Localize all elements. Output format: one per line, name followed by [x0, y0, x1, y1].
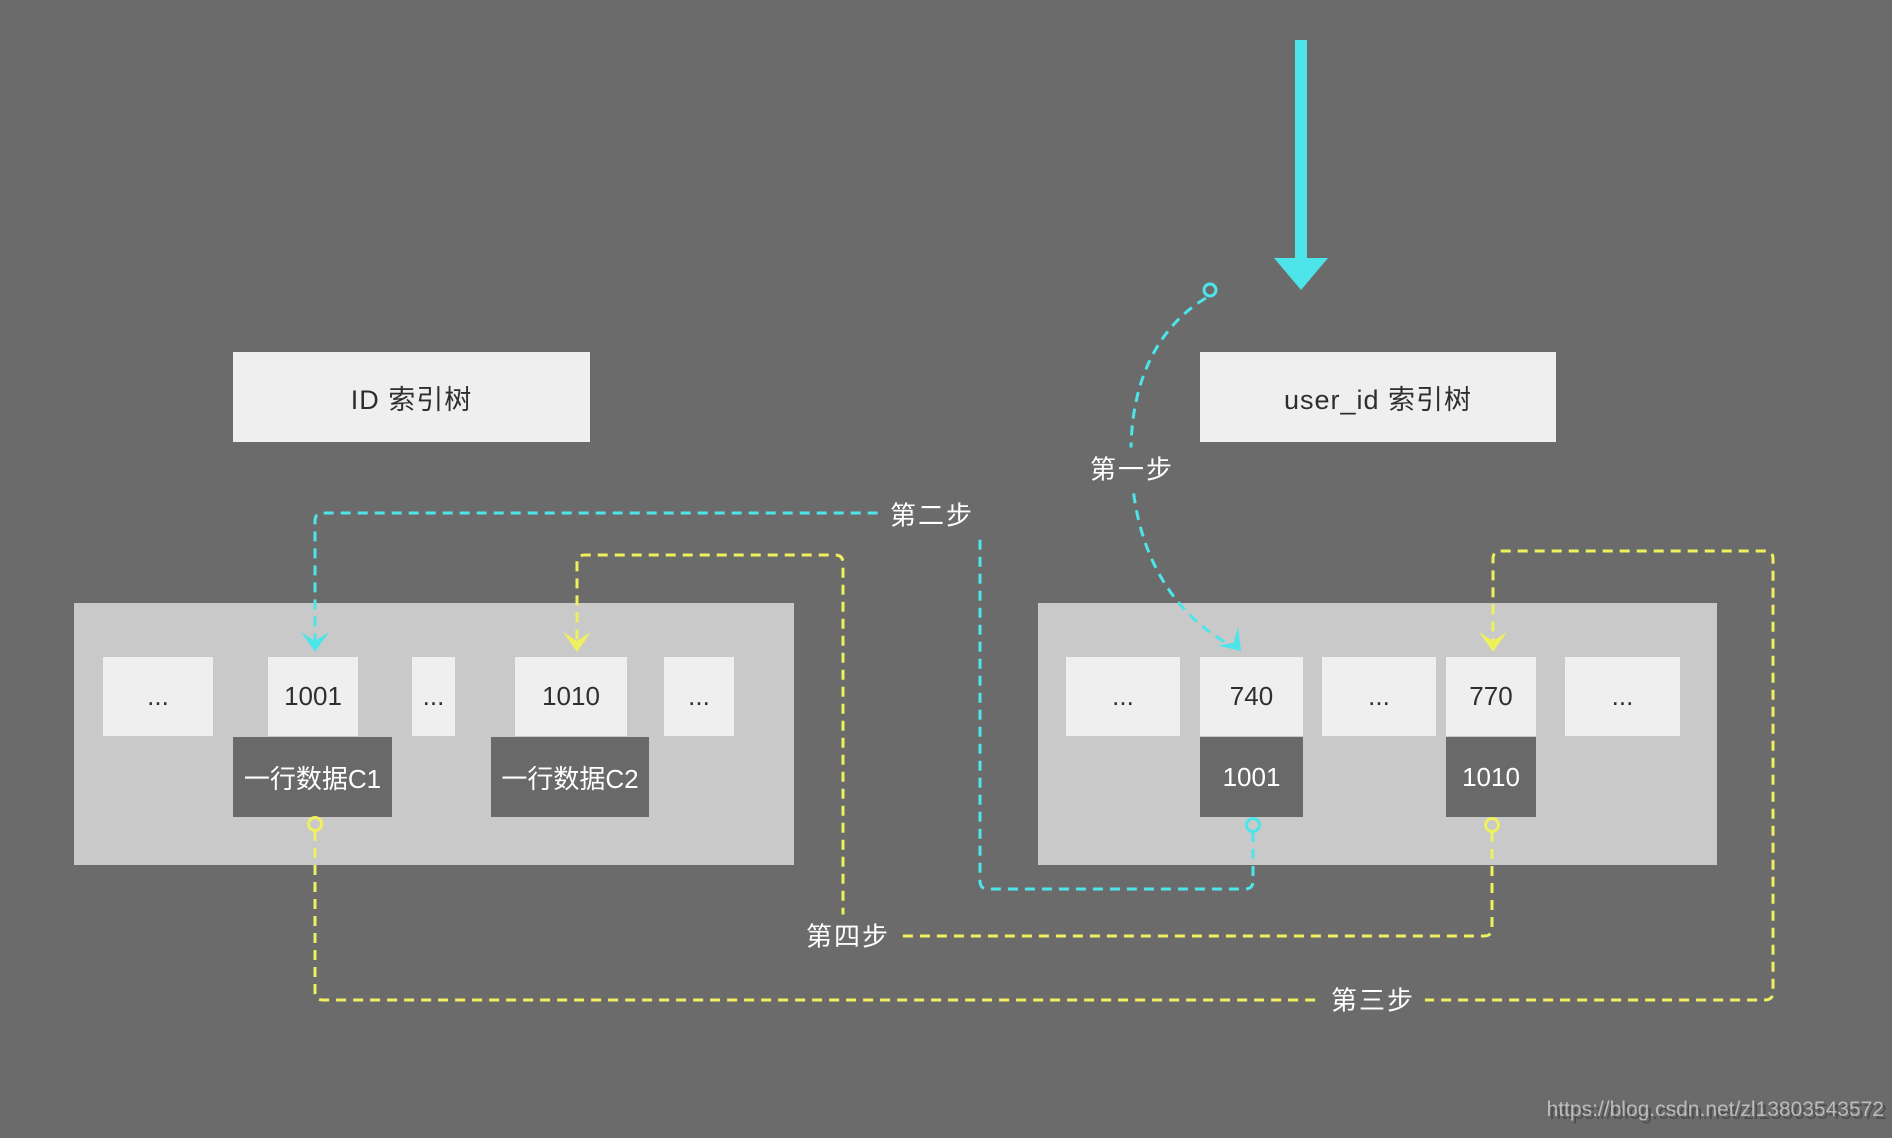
primary-key-1010-box: 1010 [1446, 737, 1536, 817]
cell-label: ... [688, 681, 710, 712]
id-index-tree-title: ID 索引树 [351, 378, 473, 417]
id-index-cell-ellipsis-2: ... [412, 657, 455, 736]
cell-label: ... [147, 681, 169, 712]
id-index-leaf-container: ... 1001 ... 1010 ... 一行数据C1 一行数据C2 [74, 603, 794, 865]
watermark: https://blog.csdn.net/zl13803543572 http… [1547, 1098, 1884, 1122]
id-index-cell-1001: 1001 [268, 657, 358, 736]
userid-index-tree-title: user_id 索引树 [1284, 378, 1472, 417]
watermark-url-text: https://blog.csdn.net/zl13803543572 [1547, 1098, 1884, 1121]
step3-label: 第三步 [1321, 979, 1425, 1020]
primary-key-label: 1001 [1223, 762, 1281, 793]
step4-label: 第四步 [796, 915, 900, 956]
step2-label: 第二步 [880, 494, 984, 535]
row-data-label: 一行数据C2 [501, 759, 638, 796]
row-data-c2-box: 一行数据C2 [491, 737, 649, 817]
step1-start-connector [1204, 284, 1216, 296]
userid-index-cell-ellipsis-1: ... [1066, 657, 1180, 736]
diagram-canvas: ID 索引树 user_id 索引树 ... 1001 ... 1010 ...… [0, 0, 1892, 1138]
id-index-cell-ellipsis-1: ... [103, 657, 213, 736]
id-index-cell-1010: 1010 [515, 657, 627, 736]
userid-index-cell-ellipsis-3: ... [1565, 657, 1680, 736]
userid-index-cell-770: 770 [1446, 657, 1536, 736]
primary-key-1001-box: 1001 [1200, 737, 1303, 817]
cell-label: 740 [1230, 681, 1273, 712]
cell-label: 1001 [284, 681, 342, 712]
row-data-c1-box: 一行数据C1 [233, 737, 392, 817]
step1-label: 第一步 [1080, 448, 1184, 489]
primary-key-label: 1010 [1462, 762, 1520, 793]
id-index-cell-ellipsis-3: ... [664, 657, 734, 736]
cell-label: ... [1112, 681, 1134, 712]
userid-index-cell-ellipsis-2: ... [1322, 657, 1436, 736]
userid-index-leaf-container: ... 740 ... 770 ... 1001 1010 [1038, 603, 1717, 865]
cell-label: ... [1368, 681, 1390, 712]
userid-index-cell-740: 740 [1200, 657, 1303, 736]
id-index-tree-header: ID 索引树 [233, 352, 590, 442]
row-data-label: 一行数据C1 [244, 759, 381, 796]
cell-label: ... [423, 681, 445, 712]
cell-label: 770 [1469, 681, 1512, 712]
query-entry-down-arrow-icon [1274, 40, 1328, 290]
flow-paths-overlay [0, 0, 1892, 1138]
cell-label: 1010 [542, 681, 600, 712]
userid-index-tree-header: user_id 索引树 [1200, 352, 1556, 442]
cell-label: ... [1612, 681, 1634, 712]
